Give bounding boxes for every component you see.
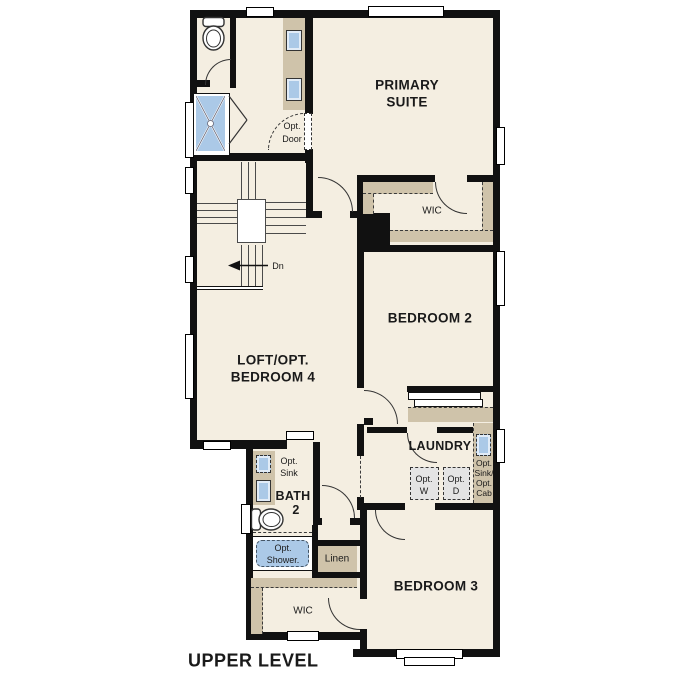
hall-cased-opening bbox=[360, 456, 361, 498]
opt-laundry-sink bbox=[476, 434, 491, 456]
opt-sink-label: Sink bbox=[280, 468, 298, 478]
wic-shelf bbox=[482, 182, 493, 232]
page-title: UPPER LEVEL bbox=[188, 651, 319, 672]
room-label-bedroom3: BEDROOM 3 bbox=[394, 579, 478, 594]
opt-shower-label: Opt. bbox=[274, 543, 291, 553]
room-label-bath2: 2 bbox=[292, 503, 299, 517]
stair-tread bbox=[266, 225, 306, 226]
shower-door bbox=[227, 94, 251, 148]
window bbox=[368, 6, 444, 17]
stair-tread bbox=[266, 217, 306, 218]
shower bbox=[193, 93, 230, 156]
opt-sink-cab-label: Cab bbox=[476, 488, 492, 498]
wall-segment bbox=[313, 211, 322, 218]
room-label-bath2: BATH bbox=[276, 489, 311, 503]
opt-shower-tub bbox=[252, 536, 313, 571]
wall-segment bbox=[360, 503, 367, 599]
shower-x-icon bbox=[196, 96, 225, 151]
stair-down-label: Dn bbox=[272, 261, 284, 271]
sink bbox=[256, 480, 271, 502]
stair-tread bbox=[266, 202, 306, 203]
room-label-loft: LOFT/OPT. bbox=[237, 353, 309, 368]
room-label-wic-lower: WIC bbox=[293, 606, 312, 617]
window bbox=[404, 657, 455, 666]
stair-tread bbox=[241, 162, 242, 199]
room-label-primary-suite: PRIMARY bbox=[375, 78, 439, 93]
stair-tread bbox=[197, 203, 237, 204]
floor-plan: PRIMARY SUITE WIC BEDROOM 2 LOFT/OPT. BE… bbox=[0, 0, 687, 687]
wall-chase-block bbox=[357, 213, 390, 245]
room-label-bedroom2: BEDROOM 2 bbox=[388, 311, 472, 326]
opt-shower-label: Shower. bbox=[267, 555, 300, 565]
toilet bbox=[250, 504, 286, 535]
wic-shelf bbox=[363, 182, 433, 194]
wall-segment bbox=[313, 442, 320, 525]
wic-lower-shelf bbox=[251, 578, 357, 588]
opt-door-label: Opt. bbox=[283, 121, 300, 131]
toilet bbox=[199, 16, 229, 53]
opt-door-leaf bbox=[304, 113, 312, 150]
window bbox=[203, 441, 231, 450]
wall-segment bbox=[190, 10, 500, 18]
closet-shelf bbox=[408, 407, 493, 422]
opt-sink-cab-label: Opt. bbox=[476, 478, 492, 488]
opt-dryer-label: Opt. bbox=[447, 474, 464, 484]
room-label-linen: Linen bbox=[325, 554, 349, 565]
stair-down-arrow bbox=[228, 260, 270, 271]
wall-segment bbox=[467, 175, 493, 182]
wall-segment bbox=[357, 424, 364, 456]
stair-tread bbox=[266, 233, 306, 234]
sink bbox=[286, 30, 302, 51]
window bbox=[496, 127, 505, 165]
window bbox=[496, 251, 505, 306]
window bbox=[496, 429, 505, 463]
wic-shelf bbox=[390, 230, 493, 242]
wall-segment bbox=[367, 427, 407, 433]
window bbox=[185, 256, 194, 283]
stair-landing bbox=[237, 199, 266, 243]
room-label-wic-primary: WIC bbox=[422, 206, 441, 217]
wall-segment bbox=[306, 161, 313, 218]
wall-segment bbox=[357, 245, 493, 252]
wall-segment bbox=[435, 503, 493, 510]
room-label-laundry: LAUNDRY bbox=[409, 439, 472, 453]
room-label-loft: BEDROOM 4 bbox=[231, 370, 315, 385]
wall-segment bbox=[313, 518, 322, 525]
stair-tread bbox=[266, 209, 306, 210]
opt-sink-label: Opt. bbox=[280, 456, 297, 466]
wall-segment bbox=[493, 10, 500, 657]
window bbox=[185, 167, 194, 194]
opt-sink-cab-label: Sink/ bbox=[475, 468, 494, 478]
wall-segment bbox=[360, 629, 367, 657]
opt-washer-label: W bbox=[420, 486, 429, 496]
wic-shelf bbox=[363, 194, 374, 214]
sink bbox=[286, 78, 302, 101]
opt-sink bbox=[256, 455, 271, 473]
stair-rail bbox=[197, 286, 263, 290]
opt-dryer-label: D bbox=[453, 486, 460, 496]
stair-tread bbox=[197, 217, 237, 218]
wic-lower-shelf bbox=[251, 588, 263, 634]
bath2-pocket-door bbox=[286, 431, 314, 440]
window bbox=[185, 334, 194, 399]
stair-tread bbox=[197, 223, 237, 224]
stair-tread bbox=[248, 162, 249, 199]
opt-shower-divider bbox=[253, 532, 312, 533]
stair-tread bbox=[255, 162, 256, 199]
window bbox=[287, 631, 319, 641]
room-label-primary-suite: SUITE bbox=[386, 95, 427, 110]
opt-door-label: Door bbox=[282, 134, 302, 144]
opt-washer-label: Opt. bbox=[415, 474, 432, 484]
closet-slider bbox=[414, 399, 483, 407]
opt-sink-cab-label: Opt. bbox=[476, 458, 492, 468]
window bbox=[246, 7, 274, 17]
stair-tread bbox=[197, 210, 237, 211]
wall-segment bbox=[357, 252, 364, 388]
wall-segment bbox=[305, 10, 313, 114]
wall-segment bbox=[357, 175, 435, 182]
